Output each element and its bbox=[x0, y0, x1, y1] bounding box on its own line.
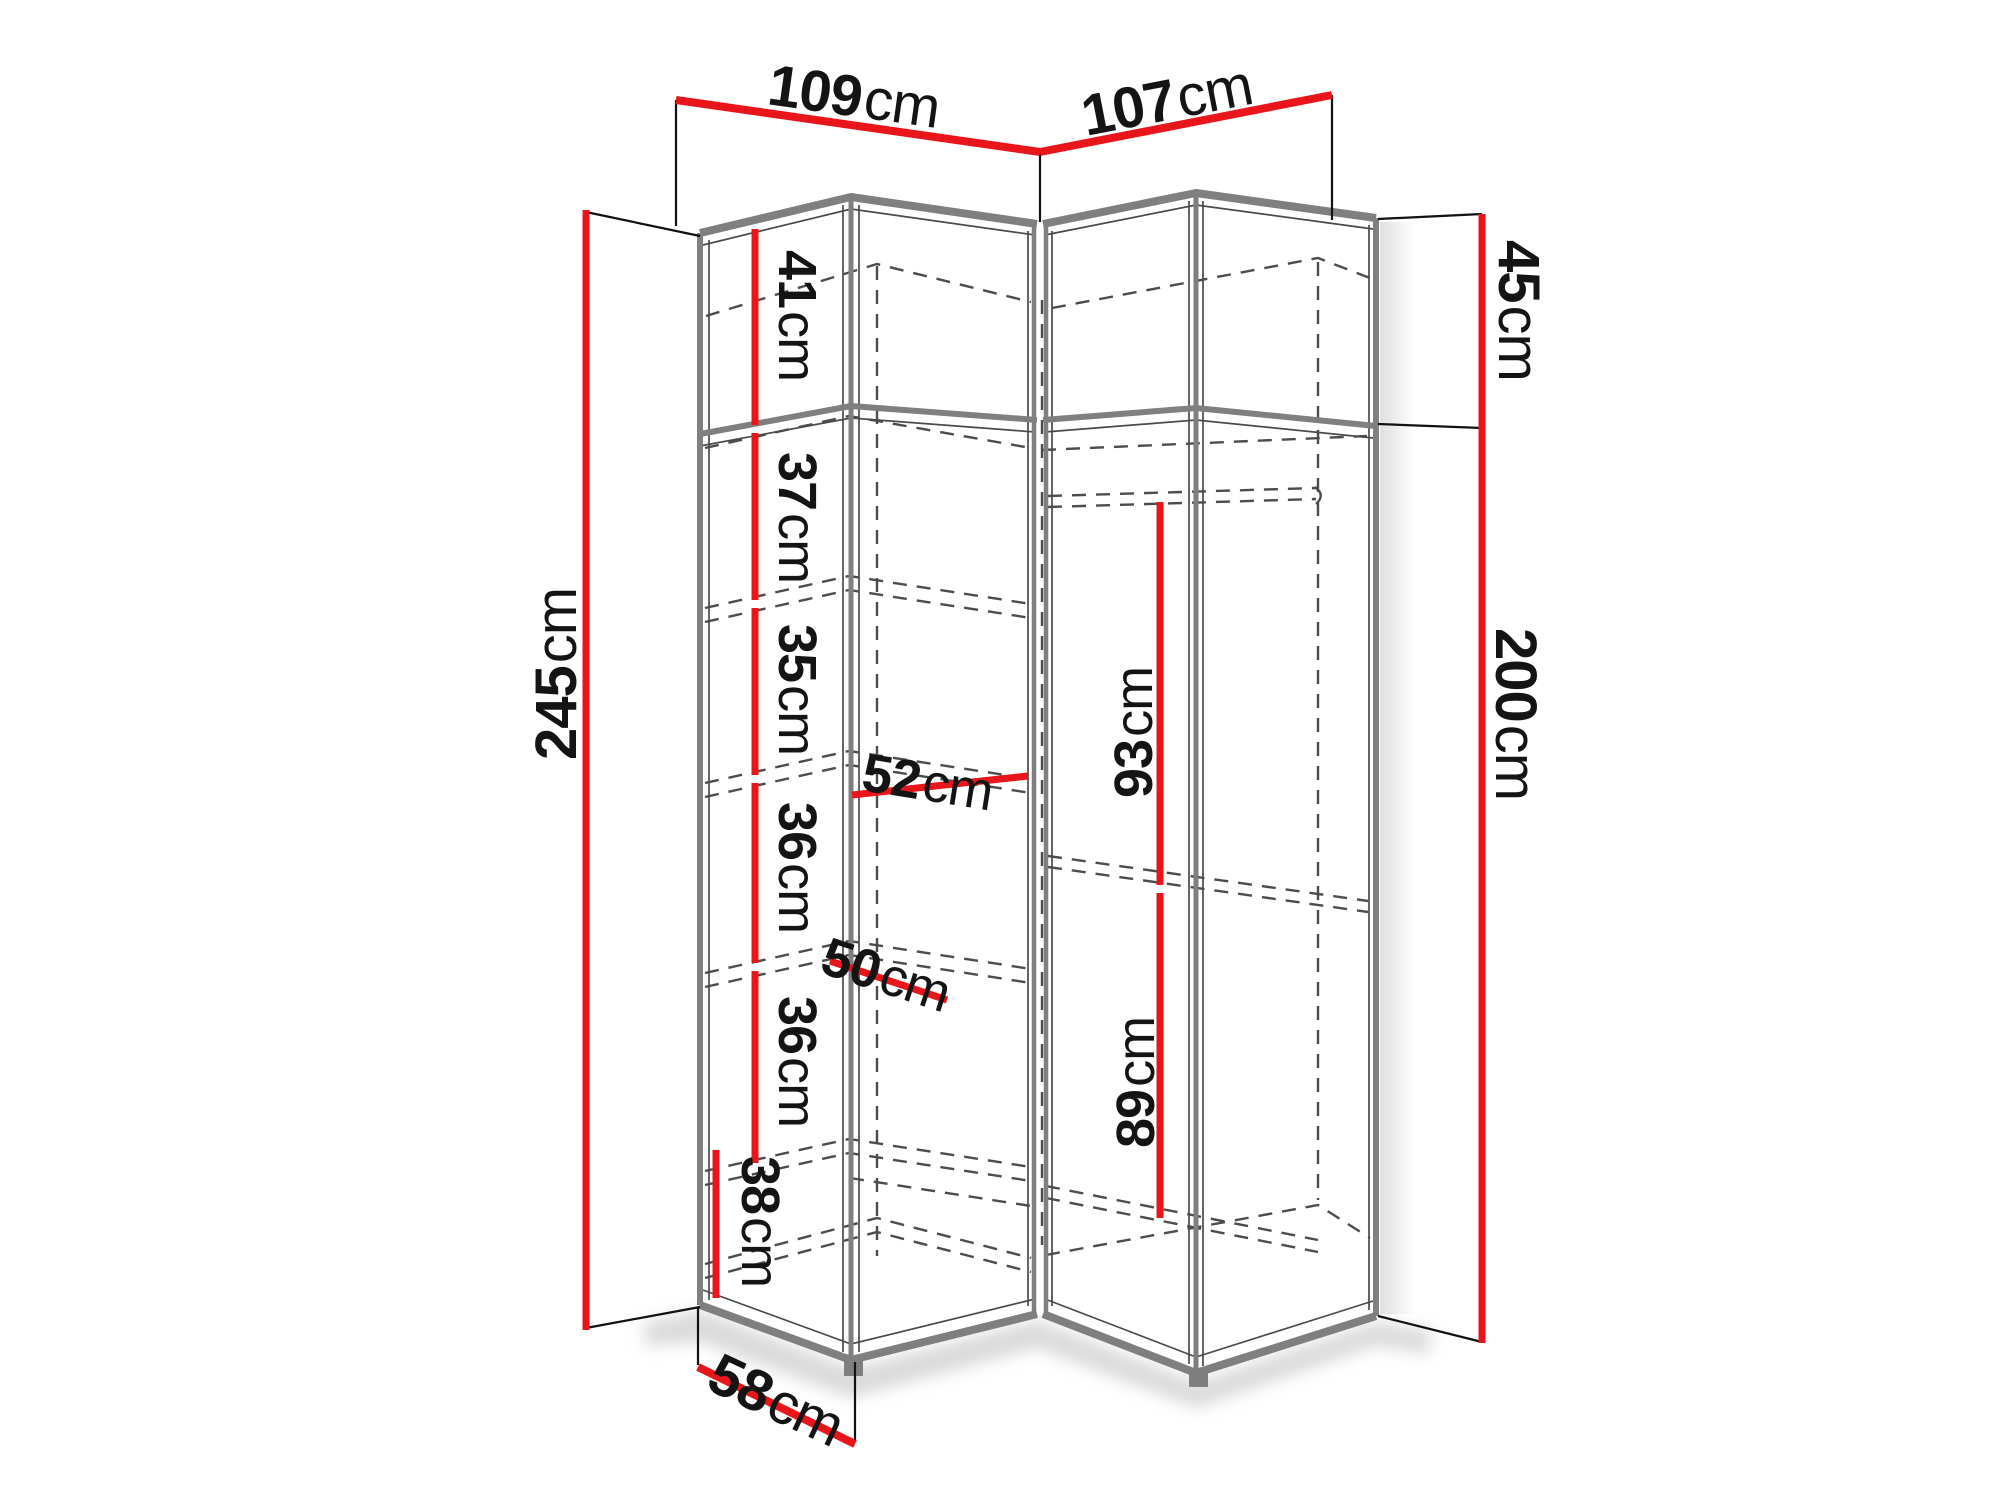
right-side-glow bbox=[1380, 222, 1416, 1314]
wardrobe-dimension-diagram: 109cm 107cm 245cm 45cm 200cm 58cm 41cm 3… bbox=[0, 0, 2000, 1500]
dim-label-36cm-upper: 36cm bbox=[767, 802, 827, 933]
dim-label-45cm: 45cm bbox=[1486, 240, 1551, 381]
dim-label-107cm: 107cm bbox=[1076, 52, 1257, 149]
dim-label-37cm: 37cm bbox=[767, 452, 827, 583]
diagram-canvas: 109cm 107cm 245cm 45cm 200cm 58cm 41cm 3… bbox=[0, 0, 2000, 1500]
dim-label-35cm: 35cm bbox=[767, 624, 827, 755]
dim-label-38cm: 38cm bbox=[730, 1156, 790, 1287]
dim-label-109cm: 109cm bbox=[764, 53, 943, 141]
dim-label-245cm: 245cm bbox=[524, 588, 589, 760]
right-side-face bbox=[1196, 193, 1376, 1373]
dim-label-200cm: 200cm bbox=[1483, 628, 1548, 800]
dim-label-36cm-lower: 36cm bbox=[767, 996, 827, 1127]
dim-label-89cm: 89cm bbox=[1106, 1017, 1166, 1148]
dim-label-41cm: 41cm bbox=[767, 250, 827, 381]
dim-label-93cm: 93cm bbox=[1104, 667, 1164, 798]
